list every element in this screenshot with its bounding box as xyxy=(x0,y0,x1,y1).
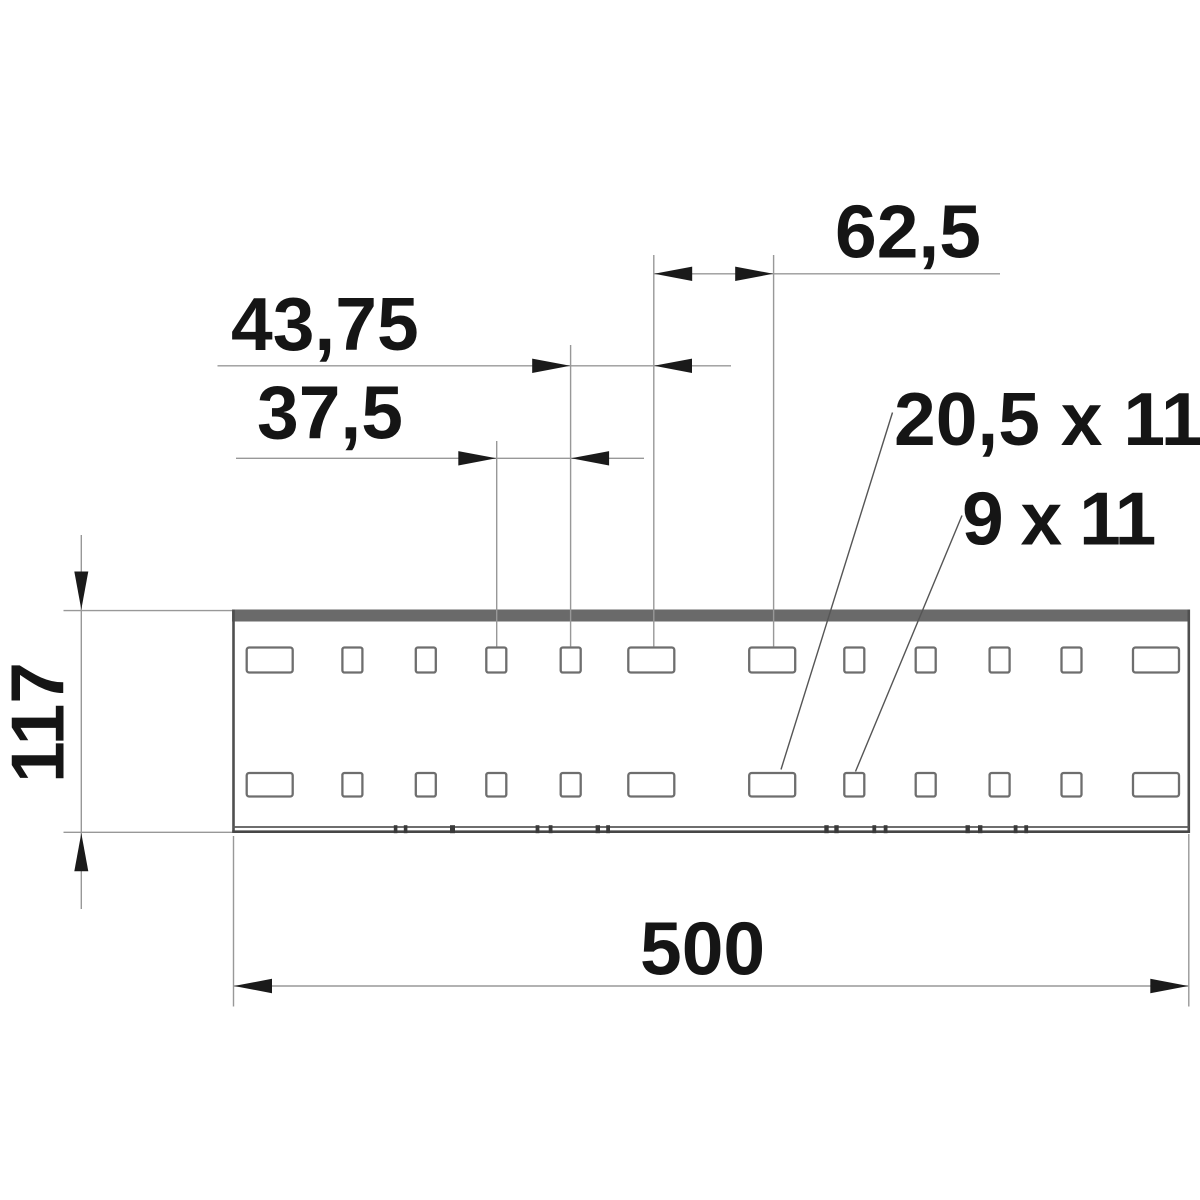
svg-text:9 x 11: 9 x 11 xyxy=(962,477,1155,561)
svg-text:20,5 x 11: 20,5 x 11 xyxy=(894,377,1200,461)
svg-text:500: 500 xyxy=(640,907,765,991)
svg-text:37,5: 37,5 xyxy=(257,370,403,454)
svg-text:117: 117 xyxy=(0,662,80,783)
svg-text:43,75: 43,75 xyxy=(231,282,419,366)
svg-text:62,5: 62,5 xyxy=(835,189,981,273)
